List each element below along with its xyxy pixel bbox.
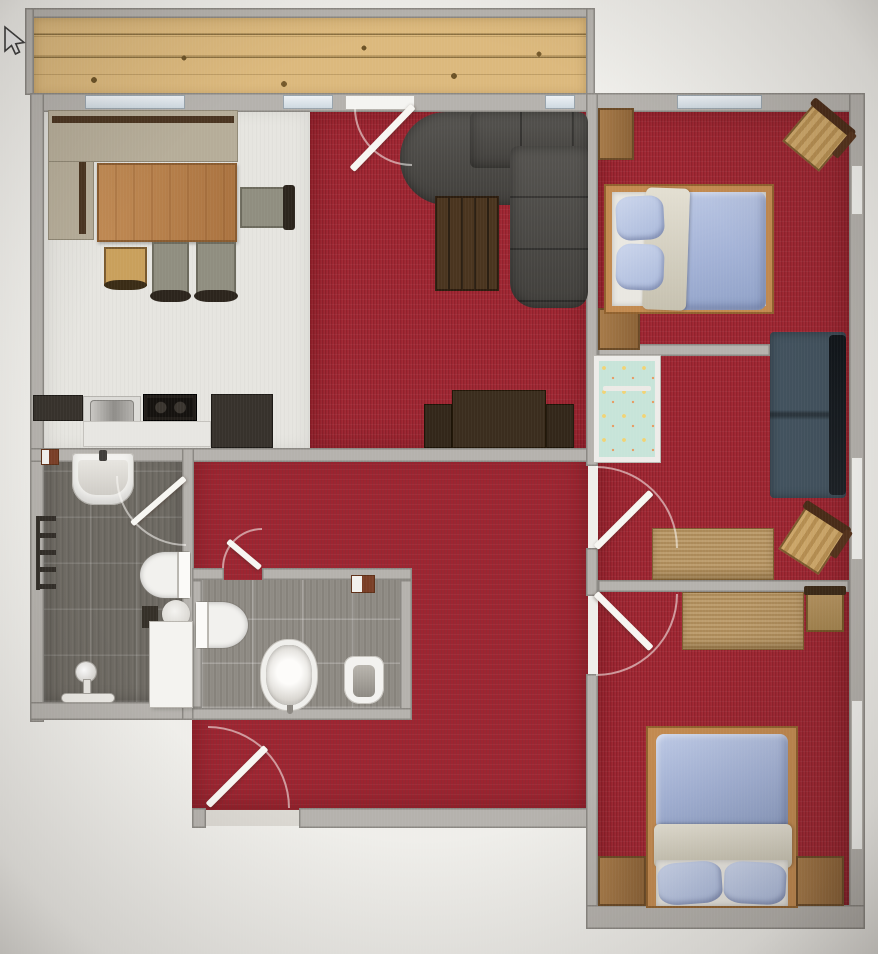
wc-urinal[interactable]: [344, 656, 384, 704]
wall-hall-bottom-left: [192, 808, 206, 828]
towel-radiator[interactable]: [36, 516, 56, 590]
wall-hall-bottom-right: [299, 808, 598, 828]
kitchen-stove[interactable]: [143, 394, 197, 421]
sideboard-right[interactable]: [546, 404, 574, 448]
bedroom2-desk[interactable]: [682, 592, 804, 650]
wall-wc-right: [400, 580, 412, 720]
window-right-1: [851, 165, 863, 215]
dining-chair-2[interactable]: [196, 242, 236, 295]
bed2-duvet: [656, 734, 788, 830]
double-bed-pillow-1: [615, 195, 665, 241]
kitchen-counter-right[interactable]: [211, 394, 273, 448]
wall-mid-vertical-mid: [586, 548, 598, 596]
crib[interactable]: [594, 356, 660, 462]
wardrobe-bedroom1-top[interactable]: [598, 108, 634, 160]
dining-chair-right[interactable]: [240, 187, 287, 228]
balcony-wall-top: [25, 8, 595, 18]
dining-chair-1[interactable]: [152, 242, 189, 295]
wardrobe-bedroom2-left[interactable]: [598, 856, 646, 906]
mouse-cursor: [2, 25, 26, 57]
window-right-3: [851, 700, 863, 850]
window-bedroom-top: [677, 95, 762, 109]
wall-bottom-right: [586, 905, 865, 929]
wc-bidet[interactable]: [266, 645, 312, 705]
window-kitchen: [85, 95, 185, 109]
sofa-right-arm[interactable]: [510, 146, 588, 308]
kids-room-sofa[interactable]: [770, 332, 846, 498]
wc-toilet[interactable]: [196, 602, 248, 648]
bathroom-door-open-leaf[interactable]: [150, 622, 192, 707]
balcony-wall-left: [25, 8, 34, 95]
wall-wc-top-right: [262, 568, 412, 580]
bed2-pillow-1: [657, 860, 724, 906]
balcony-wall-right: [586, 8, 595, 95]
coffee-table[interactable]: [435, 196, 499, 291]
window-top-2: [283, 95, 333, 109]
wall-wc-bottom: [192, 708, 412, 720]
sideboard-center[interactable]: [452, 390, 546, 448]
wall-wc-top-left: [192, 568, 224, 580]
bed2-pillow-2: [723, 860, 787, 905]
wardrobe-bedroom1-bottom[interactable]: [598, 308, 640, 350]
bathroom-accessory[interactable]: [42, 450, 58, 464]
shower-head[interactable]: [76, 662, 96, 682]
entry-threshold: [206, 810, 299, 826]
bathroom-toilet[interactable]: [140, 552, 190, 598]
kids-high-chair[interactable]: [104, 247, 147, 286]
corner-bench-horizontal[interactable]: [48, 110, 238, 162]
window-right-2: [851, 457, 863, 560]
double-bed-pillow-2: [615, 243, 665, 291]
wardrobe-bedroom2-right[interactable]: [796, 856, 844, 906]
wall-mid-vertical-lower: [586, 674, 598, 907]
kitchen-counter-left[interactable]: [33, 395, 83, 421]
dining-table[interactable]: [97, 163, 237, 242]
sideboard-left[interactable]: [424, 404, 452, 448]
wc-accessory[interactable]: [352, 576, 374, 592]
window-top-3: [545, 95, 575, 109]
bedroom2-nightstand[interactable]: [806, 588, 844, 632]
balcony-deck: [34, 18, 586, 95]
floor-plan-canvas: [0, 0, 878, 954]
shower-bar[interactable]: [62, 694, 114, 702]
kitchen-cabinet-white[interactable]: [83, 421, 211, 447]
